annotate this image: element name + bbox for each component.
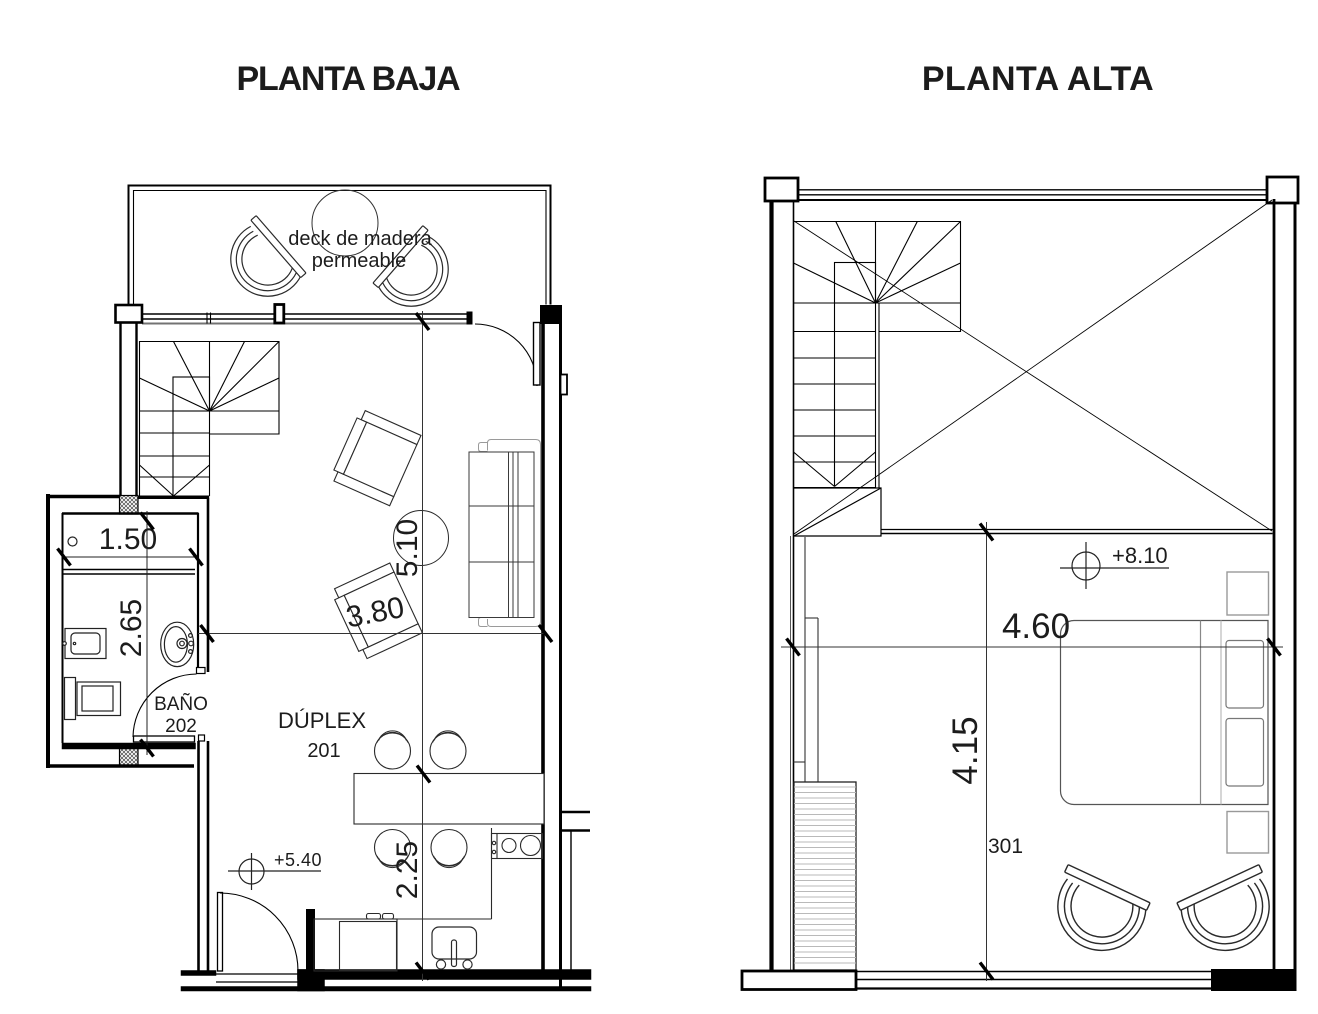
svg-text:1.50: 1.50 bbox=[99, 523, 157, 556]
svg-text:4.15: 4.15 bbox=[946, 716, 985, 784]
svg-text:201: 201 bbox=[307, 740, 340, 762]
svg-text:DÚPLEX: DÚPLEX bbox=[278, 708, 366, 733]
svg-text:5.10: 5.10 bbox=[391, 519, 424, 577]
svg-text:permeable: permeable bbox=[312, 250, 407, 272]
svg-text:301: 301 bbox=[988, 835, 1023, 858]
svg-text:202: 202 bbox=[165, 716, 197, 737]
svg-text:PLANTA ALTA: PLANTA ALTA bbox=[922, 60, 1154, 98]
svg-text:4.60: 4.60 bbox=[1002, 607, 1070, 646]
svg-text:BAÑO: BAÑO bbox=[154, 693, 208, 715]
svg-text:+5.40: +5.40 bbox=[274, 850, 322, 870]
svg-text:2.25: 2.25 bbox=[391, 841, 424, 899]
svg-text:PLANTA BAJA: PLANTA BAJA bbox=[237, 60, 461, 98]
svg-text:deck de madera: deck de madera bbox=[288, 228, 432, 250]
svg-text:2.65: 2.65 bbox=[115, 599, 148, 657]
svg-text:+8.10: +8.10 bbox=[1112, 543, 1168, 568]
